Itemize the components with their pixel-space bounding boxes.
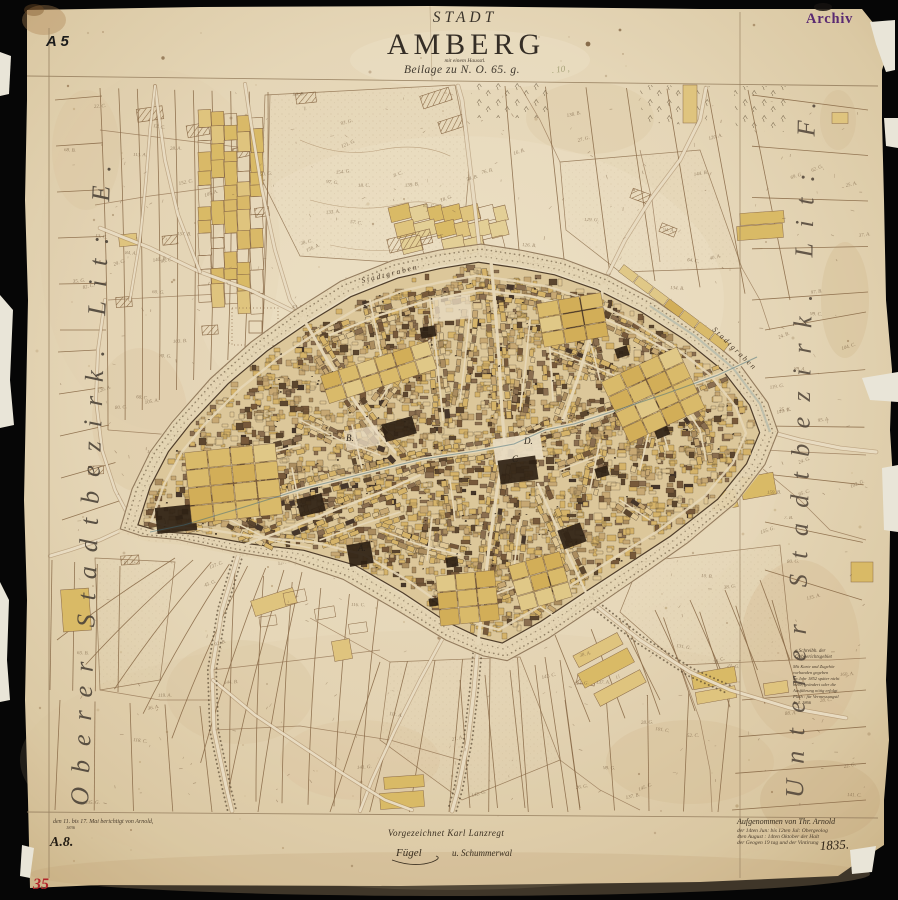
svg-text:D.: D.	[523, 436, 533, 446]
svg-text:28. G.: 28. G.	[641, 720, 654, 726]
svg-text:68. B.: 68. B.	[64, 148, 76, 154]
svg-text:A.: A.	[357, 543, 366, 553]
svg-text:82. C.: 82. C.	[423, 204, 435, 209]
svg-text:80. G.: 80. G.	[787, 560, 800, 565]
svg-text:144. B.: 144. B.	[224, 680, 239, 686]
svg-text:28. A.: 28. A.	[170, 147, 182, 152]
svg-text:35: 35	[32, 876, 49, 893]
svg-text:Ausführung nötig erfolgt: Ausführung nötig erfolgt	[792, 688, 838, 693]
svg-text:25. C.: 25. C.	[779, 408, 791, 413]
svg-text:der 14ten Jun: bis 12ten Jul:: der 14ten Jun: bis 12ten Jul: Obergeolog	[737, 827, 828, 834]
svg-text:AMBERG: AMBERG	[387, 28, 545, 61]
svg-text:137. A.: 137. A.	[596, 681, 610, 686]
svg-text:vorhanden gegeben: vorhanden gegeben	[793, 670, 829, 675]
svg-text:. 10 ,: . 10 ,	[551, 63, 570, 75]
svg-text:A 5: A 5	[45, 33, 69, 50]
svg-text:52. C.: 52. C.	[687, 734, 699, 739]
svg-text:Fügel: Fügel	[395, 847, 422, 859]
svg-text:A.8.: A.8.	[49, 835, 73, 850]
svg-text:a Schreibh. der: a Schreibh. der	[795, 649, 826, 654]
svg-text:im Jahr 1852 später nicht: im Jahr 1852 später nicht	[793, 676, 840, 681]
svg-text:80. C.: 80. C.	[115, 405, 127, 411]
svg-text:93. B.: 93. B.	[293, 92, 305, 98]
svg-text:Beilage zu N. O. 65. g.: Beilage zu N. O. 65. g.	[404, 64, 520, 76]
svg-text:119. A.: 119. A.	[158, 694, 172, 699]
svg-text:1. 4. 1866: 1. 4. 1866	[793, 700, 812, 705]
svg-text:Plath : für Vermessungstl: Plath : für Vermessungstl	[792, 694, 839, 699]
svg-text:1836: 1836	[66, 825, 76, 830]
svg-text:B.: B.	[346, 433, 354, 443]
svg-text:Archiv: Archiv	[806, 11, 853, 27]
svg-text:129. G.: 129. G.	[584, 218, 599, 223]
svg-text:98. G.: 98. G.	[603, 766, 616, 771]
svg-text:4ten August : 14ten Oktober de: 4ten August : 14ten Oktober der Halt	[737, 833, 820, 840]
svg-text:STADT: STADT	[433, 9, 498, 26]
svg-text:134. B.: 134. B.	[670, 286, 685, 292]
svg-text:157. B.: 157. B.	[177, 232, 191, 237]
svg-text:81. G.: 81. G.	[124, 560, 137, 566]
svg-text:Aufgenommen von Thr. Arnold: Aufgenommen von Thr. Arnold	[736, 817, 836, 826]
svg-text:141. C.: 141. C.	[847, 793, 862, 799]
svg-text:Vorgezeichnet Karl Lanzregt: Vorgezeichnet Karl Lanzregt	[388, 828, 504, 838]
svg-text:113. A.: 113. A.	[133, 153, 147, 158]
svg-text:1835.: 1835.	[819, 836, 849, 853]
svg-text:65. B.: 65. B.	[77, 651, 89, 657]
svg-text:160. A.: 160. A.	[840, 672, 855, 678]
svg-text:159. B.: 159. B.	[767, 491, 781, 496]
svg-text:Mit Karte und Zugehör: Mit Karte und Zugehör	[792, 664, 835, 669]
svg-text:18. C.: 18. C.	[358, 184, 370, 189]
svg-text:10. B.: 10. B.	[701, 574, 713, 580]
svg-text:70. G.: 70. G.	[159, 354, 172, 360]
svg-text:94. A.: 94. A.	[663, 228, 675, 234]
svg-text:u. Schummerwal: u. Schummerwal	[452, 848, 512, 858]
svg-text:der Geogen 19 tag und der Vint: der Geogen 19 tag und der Vintirung	[737, 840, 819, 846]
svg-text:C: C	[512, 454, 519, 464]
svg-text:103. B.: 103. B.	[173, 339, 188, 345]
svg-text:84. A.: 84. A.	[125, 251, 137, 257]
svg-text:116. C.: 116. C.	[351, 603, 365, 608]
svg-text:Obbgerichtsgebiet: Obbgerichtsgebiet	[795, 655, 833, 660]
svg-text:22. C.: 22. C.	[94, 104, 106, 110]
svg-text:141. G.: 141. G.	[357, 765, 372, 771]
svg-text:121. G.: 121. G.	[574, 681, 589, 687]
